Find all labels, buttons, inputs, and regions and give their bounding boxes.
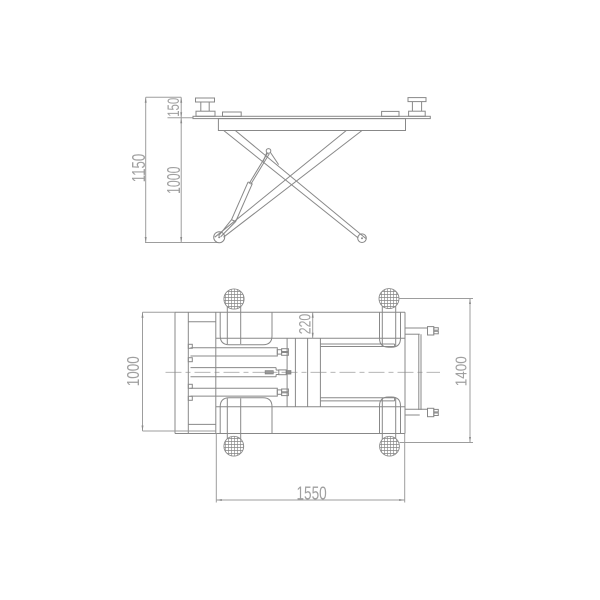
- svg-text:150: 150: [164, 98, 183, 117]
- svg-text:1000: 1000: [123, 356, 143, 386]
- svg-text:1550: 1550: [297, 483, 327, 503]
- svg-text:1150: 1150: [129, 154, 149, 183]
- svg-text:1000: 1000: [164, 167, 184, 195]
- svg-text:220: 220: [296, 314, 315, 334]
- svg-text:1400: 1400: [454, 356, 471, 386]
